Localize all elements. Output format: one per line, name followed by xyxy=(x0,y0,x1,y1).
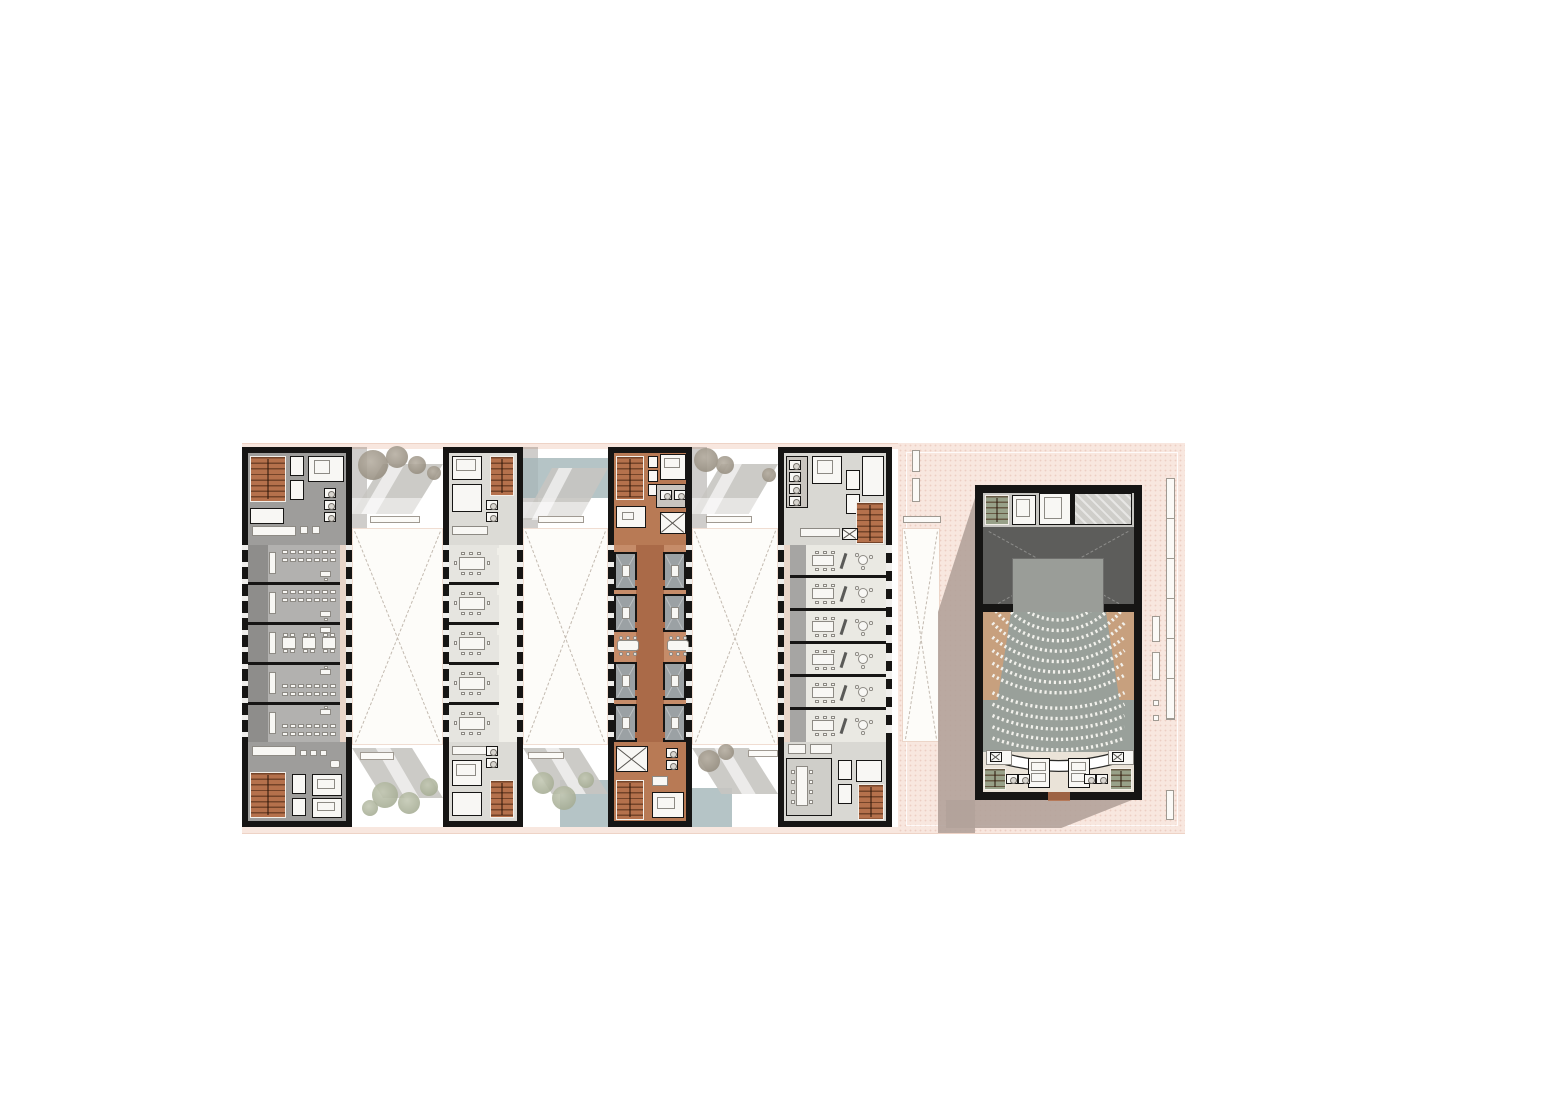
window-band xyxy=(346,545,352,742)
furniture xyxy=(300,526,308,534)
chair xyxy=(855,652,859,656)
furniture xyxy=(322,732,328,736)
furniture xyxy=(809,770,813,774)
door-gap xyxy=(497,548,499,555)
furniture xyxy=(456,764,476,776)
furniture xyxy=(823,617,827,620)
chair xyxy=(669,652,673,656)
furniture xyxy=(831,568,835,571)
chair xyxy=(324,666,328,669)
elevator-xbox xyxy=(616,746,648,772)
furniture xyxy=(306,558,312,562)
furniture xyxy=(330,633,335,637)
furniture xyxy=(290,724,296,728)
furniture xyxy=(317,779,335,789)
furniture xyxy=(823,551,827,554)
furniture xyxy=(330,724,336,728)
furniture xyxy=(791,790,795,794)
furniture xyxy=(477,712,481,715)
courtyard-skylight xyxy=(692,528,778,745)
furniture xyxy=(809,780,813,784)
partition-wall xyxy=(790,608,886,611)
chair xyxy=(861,599,865,603)
entry-paving xyxy=(1048,792,1070,801)
elevator xyxy=(846,470,860,490)
furniture xyxy=(452,526,488,535)
furniture xyxy=(461,732,465,735)
stair-rail xyxy=(501,459,503,493)
furniture xyxy=(330,649,335,653)
round-table xyxy=(858,654,868,664)
furniture xyxy=(330,598,336,602)
furniture xyxy=(330,692,336,696)
furniture xyxy=(815,667,819,670)
furniture xyxy=(812,588,834,599)
furniture xyxy=(812,621,834,632)
furniture xyxy=(487,641,490,645)
furniture xyxy=(671,717,679,729)
chair xyxy=(633,652,637,656)
tree xyxy=(408,456,426,474)
wc-fixture xyxy=(328,515,335,522)
furniture xyxy=(469,572,473,575)
furniture xyxy=(815,551,819,554)
furniture xyxy=(1016,499,1030,517)
furniture xyxy=(282,550,288,554)
furniture xyxy=(791,770,795,774)
furniture xyxy=(469,632,473,635)
chair xyxy=(855,553,859,557)
furniture xyxy=(664,458,680,468)
chair xyxy=(324,618,328,621)
courtyard-skylight xyxy=(523,528,608,745)
round-table xyxy=(858,621,868,631)
pantry-room xyxy=(786,758,832,816)
partition-wall xyxy=(449,582,499,585)
wc-fixture xyxy=(1010,777,1017,784)
furniture xyxy=(330,684,336,688)
window-band xyxy=(242,545,248,742)
chair xyxy=(869,555,873,559)
furniture xyxy=(815,601,819,604)
furniture xyxy=(322,598,328,602)
furniture xyxy=(815,584,819,587)
furniture xyxy=(306,692,312,696)
furniture xyxy=(815,650,819,653)
furniture xyxy=(817,460,833,474)
furniture xyxy=(283,649,288,653)
furniture xyxy=(657,797,675,809)
furniture xyxy=(831,667,835,670)
furniture xyxy=(461,552,465,555)
door-dash xyxy=(635,622,637,628)
elevator xyxy=(648,470,658,482)
furniture xyxy=(831,733,835,736)
chair xyxy=(869,720,873,724)
furniture xyxy=(320,750,327,756)
backstage-partition xyxy=(1071,493,1074,525)
bench xyxy=(538,516,584,523)
furniture xyxy=(815,634,819,637)
elevator-xbox xyxy=(660,512,686,534)
furniture xyxy=(461,612,465,615)
furniture xyxy=(831,650,835,653)
elevator xyxy=(290,456,304,476)
furniture xyxy=(282,724,288,728)
furniture xyxy=(252,526,296,536)
round-table xyxy=(858,720,868,730)
furniture xyxy=(322,637,336,649)
furniture xyxy=(302,637,316,649)
furniture xyxy=(815,683,819,686)
furniture xyxy=(461,592,465,595)
wc-fixture xyxy=(1022,777,1029,784)
tree xyxy=(578,772,594,788)
tree xyxy=(718,744,734,760)
elevator xyxy=(292,798,306,816)
wc-fixture xyxy=(490,503,497,510)
furniture xyxy=(290,732,296,736)
furniture xyxy=(298,724,304,728)
bench xyxy=(1152,616,1160,642)
furniture xyxy=(1031,762,1046,771)
furniture xyxy=(477,652,481,655)
furniture xyxy=(831,716,835,719)
furniture xyxy=(831,601,835,604)
furniture xyxy=(322,550,328,554)
furniture xyxy=(298,550,304,554)
furniture xyxy=(477,592,481,595)
room xyxy=(856,760,882,782)
furniture xyxy=(269,632,276,654)
chair xyxy=(869,687,873,691)
furniture xyxy=(314,724,320,728)
tree xyxy=(420,778,438,796)
furniture xyxy=(306,550,312,554)
path-top-walk2 xyxy=(692,498,778,514)
bench xyxy=(912,450,920,472)
furniture xyxy=(487,721,490,725)
wc-fixture xyxy=(670,751,677,758)
bench xyxy=(1153,700,1159,706)
partition-wall xyxy=(248,622,340,625)
furniture xyxy=(322,724,328,728)
furniture xyxy=(290,598,296,602)
furniture xyxy=(823,700,827,703)
furniture xyxy=(320,627,331,633)
furniture xyxy=(314,598,320,602)
floor-plan xyxy=(0,0,1557,1100)
furniture xyxy=(477,672,481,675)
stair-rail xyxy=(870,787,872,817)
sheet xyxy=(0,0,1557,1100)
furniture xyxy=(622,717,630,729)
furniture xyxy=(815,733,819,736)
study-corridor xyxy=(636,545,664,742)
tree xyxy=(552,786,576,810)
furniture xyxy=(812,654,834,665)
wc-fixture xyxy=(664,493,671,500)
furniture xyxy=(314,590,320,594)
chair xyxy=(869,621,873,625)
stair-rail xyxy=(994,771,996,787)
furniture xyxy=(252,746,296,756)
furniture xyxy=(269,672,276,694)
elevator xyxy=(648,456,658,468)
furniture xyxy=(330,590,336,594)
furniture xyxy=(306,724,312,728)
room xyxy=(452,792,482,816)
furniture xyxy=(812,687,834,698)
furniture xyxy=(282,558,288,562)
furniture xyxy=(823,733,827,736)
courtyard-skylight xyxy=(352,528,443,745)
furniture xyxy=(314,732,320,736)
chair xyxy=(855,586,859,590)
furniture xyxy=(671,607,679,619)
chair xyxy=(324,578,328,581)
chair xyxy=(855,619,859,623)
furniture xyxy=(1031,773,1046,782)
chair xyxy=(619,636,623,640)
chair xyxy=(626,652,630,656)
furniture xyxy=(310,649,315,653)
furniture xyxy=(831,683,835,686)
furniture xyxy=(788,744,806,754)
furniture xyxy=(298,684,304,688)
chair xyxy=(626,636,630,640)
round-table xyxy=(858,687,868,697)
furniture xyxy=(330,550,336,554)
furniture xyxy=(269,552,276,574)
chair xyxy=(869,588,873,592)
furniture xyxy=(622,512,634,520)
furniture xyxy=(823,716,827,719)
furniture xyxy=(461,652,465,655)
chair xyxy=(633,636,637,640)
chair xyxy=(861,731,865,735)
furniture xyxy=(306,684,312,688)
wc-fixture xyxy=(793,487,800,494)
furniture xyxy=(290,633,295,637)
partition-wall xyxy=(248,662,340,665)
furniture xyxy=(459,677,485,690)
furniture xyxy=(312,526,320,534)
room xyxy=(862,456,884,496)
furniture xyxy=(306,598,312,602)
furniture xyxy=(298,692,304,696)
furniture xyxy=(791,800,795,804)
bench xyxy=(912,478,920,502)
furniture xyxy=(831,584,835,587)
door-dash xyxy=(663,732,665,738)
chair xyxy=(861,566,865,570)
furniture xyxy=(469,612,473,615)
furniture xyxy=(622,607,630,619)
furniture xyxy=(459,557,485,570)
chair xyxy=(676,636,680,640)
path-top-walk2 xyxy=(352,498,443,514)
furniture xyxy=(290,684,296,688)
furniture xyxy=(322,692,328,696)
door-dash xyxy=(635,732,637,738)
furniture xyxy=(477,552,481,555)
furniture xyxy=(310,633,315,637)
tree xyxy=(427,466,441,480)
tree xyxy=(358,450,388,480)
furniture xyxy=(823,667,827,670)
furniture xyxy=(831,551,835,554)
furniture xyxy=(815,716,819,719)
furniture xyxy=(303,633,308,637)
door-gap xyxy=(497,628,499,635)
bench xyxy=(748,750,778,757)
tree xyxy=(362,800,378,816)
furniture xyxy=(831,617,835,620)
furniture xyxy=(815,617,819,620)
door-dash xyxy=(663,690,665,696)
stair-rail xyxy=(1120,771,1122,787)
furniture xyxy=(322,590,328,594)
wc-fixture xyxy=(793,499,800,506)
chair xyxy=(855,718,859,722)
furniture xyxy=(823,683,827,686)
furniture xyxy=(290,649,295,653)
tree xyxy=(716,456,734,474)
furniture xyxy=(298,732,304,736)
stair-rail xyxy=(501,783,503,815)
furniture xyxy=(831,700,835,703)
tree xyxy=(762,468,776,482)
furniture xyxy=(322,684,328,688)
furniture xyxy=(298,598,304,602)
furniture xyxy=(290,550,296,554)
furniture xyxy=(671,675,679,687)
furniture xyxy=(452,746,488,755)
wc-fixture xyxy=(328,491,335,498)
furniture xyxy=(454,641,457,645)
furniture xyxy=(477,612,481,615)
furniture xyxy=(812,555,834,566)
furniture xyxy=(282,598,288,602)
furniture xyxy=(459,637,485,650)
door-gap xyxy=(497,708,499,715)
stair-rail xyxy=(629,783,631,817)
furniture xyxy=(477,632,481,635)
furniture xyxy=(282,692,288,696)
wc-fixture xyxy=(328,503,335,510)
furniture xyxy=(831,634,835,637)
furniture xyxy=(461,632,465,635)
tree xyxy=(398,792,420,814)
bench xyxy=(370,516,420,523)
furniture xyxy=(823,650,827,653)
stair-rail xyxy=(267,775,269,815)
furniture xyxy=(456,459,476,471)
door-gap xyxy=(497,668,499,675)
furniture xyxy=(314,684,320,688)
wc-fixture xyxy=(793,475,800,482)
furniture xyxy=(454,561,457,565)
furniture xyxy=(330,732,336,736)
furniture xyxy=(469,652,473,655)
window-band xyxy=(517,545,523,742)
furniture xyxy=(477,572,481,575)
furniture xyxy=(303,649,308,653)
chair xyxy=(324,706,328,709)
tree xyxy=(386,446,408,468)
furniture xyxy=(469,552,473,555)
partition-wall xyxy=(248,582,340,585)
furniture xyxy=(469,732,473,735)
partition-wall xyxy=(248,702,340,705)
classroom-corridor xyxy=(248,545,268,742)
tree xyxy=(698,750,720,772)
furniture xyxy=(487,681,490,685)
furniture xyxy=(320,611,331,617)
furniture xyxy=(823,634,827,637)
stair-rail xyxy=(869,505,871,541)
furniture xyxy=(617,640,639,651)
furniture xyxy=(323,633,328,637)
partition-wall xyxy=(449,662,499,665)
furniture xyxy=(796,766,808,806)
partition-wall xyxy=(790,707,886,710)
elevator-xbox xyxy=(990,752,1002,762)
wc-fixture xyxy=(1088,777,1095,784)
door-gap xyxy=(497,588,499,595)
furniture xyxy=(461,672,465,675)
furniture xyxy=(300,750,307,756)
door-dash xyxy=(663,622,665,628)
furniture xyxy=(306,590,312,594)
wc-fixture xyxy=(490,515,497,522)
furniture xyxy=(290,558,296,562)
furniture xyxy=(487,561,490,565)
furniture xyxy=(454,681,457,685)
furniture xyxy=(282,637,296,649)
chair xyxy=(855,685,859,689)
window-band xyxy=(686,545,692,742)
furniture xyxy=(320,571,331,577)
wc-fixture xyxy=(678,493,685,500)
furniture xyxy=(810,744,832,754)
furniture xyxy=(477,732,481,735)
window-band xyxy=(886,545,892,742)
furniture xyxy=(469,712,473,715)
round-table xyxy=(858,555,868,565)
bench xyxy=(1166,478,1175,720)
furniture xyxy=(809,790,813,794)
furniture xyxy=(461,692,465,695)
wc-fixture xyxy=(670,763,677,770)
furniture xyxy=(283,633,288,637)
chair xyxy=(861,632,865,636)
furniture xyxy=(320,709,331,715)
wc-fixture xyxy=(793,463,800,470)
furniture xyxy=(310,750,317,756)
door-dash xyxy=(663,580,665,586)
furniture xyxy=(477,692,481,695)
furniture xyxy=(323,649,328,653)
furniture xyxy=(330,760,340,768)
bench xyxy=(528,752,564,759)
wc-fixture xyxy=(1100,777,1107,784)
furniture xyxy=(454,601,457,605)
furniture xyxy=(282,684,288,688)
window-band xyxy=(443,545,449,742)
furniture xyxy=(469,672,473,675)
